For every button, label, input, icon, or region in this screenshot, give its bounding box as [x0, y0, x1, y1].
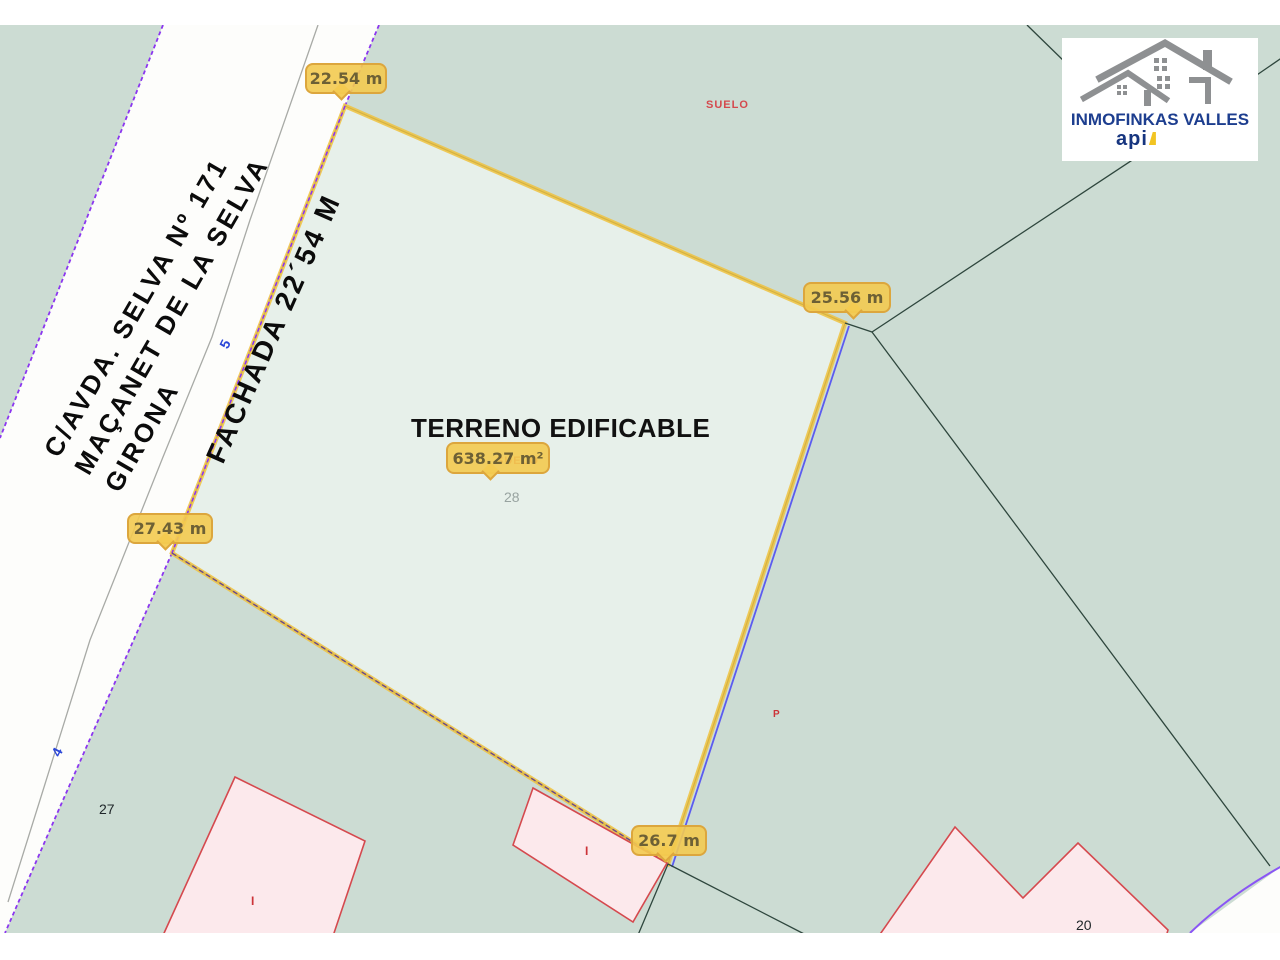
- agency-logo: INMOFINKAS VALLES api: [1062, 38, 1258, 161]
- measurement-bottom-value: 26.7 m: [638, 831, 700, 850]
- measurement-right-value: 25.56 m: [811, 288, 884, 307]
- measurement-badge-bottom: 26.7 m: [631, 825, 707, 856]
- parcel-number-28: 28: [504, 489, 520, 505]
- plot-area-badge: 638.27 m²: [446, 442, 550, 474]
- measurement-left-value: 27.43 m: [134, 519, 207, 538]
- plot-title: TERRENO EDIFICABLE: [411, 413, 710, 444]
- agency-name: INMOFINKAS VALLES: [1062, 110, 1258, 130]
- suelo-label: SUELO: [706, 99, 749, 111]
- measurement-badge-left: 27.43 m: [127, 513, 213, 544]
- measurement-top-value: 22.54 m: [310, 69, 383, 88]
- api-brand-text: api: [1116, 128, 1148, 150]
- api-brand: api: [1116, 128, 1156, 151]
- top-margin: [0, 0, 1280, 25]
- measurement-badge-top: 22.54 m: [305, 63, 387, 94]
- building-marker-i: I: [251, 894, 254, 908]
- building-marker-i: I: [585, 844, 588, 858]
- p-marker: P: [773, 709, 780, 720]
- parcel-number-20: 20: [1076, 917, 1092, 933]
- plot-area-value: 638.27 m²: [453, 449, 544, 468]
- api-yellow-mark: [1149, 132, 1156, 145]
- houses-icon: [1062, 38, 1258, 110]
- parcel-number-27: 27: [99, 801, 115, 817]
- cadastral-map: C/AVDA. SELVA Nº 171 MAÇANET DE LA SELVA…: [0, 0, 1280, 960]
- measurement-badge-right: 25.56 m: [803, 282, 891, 313]
- bottom-margin: [0, 933, 1280, 960]
